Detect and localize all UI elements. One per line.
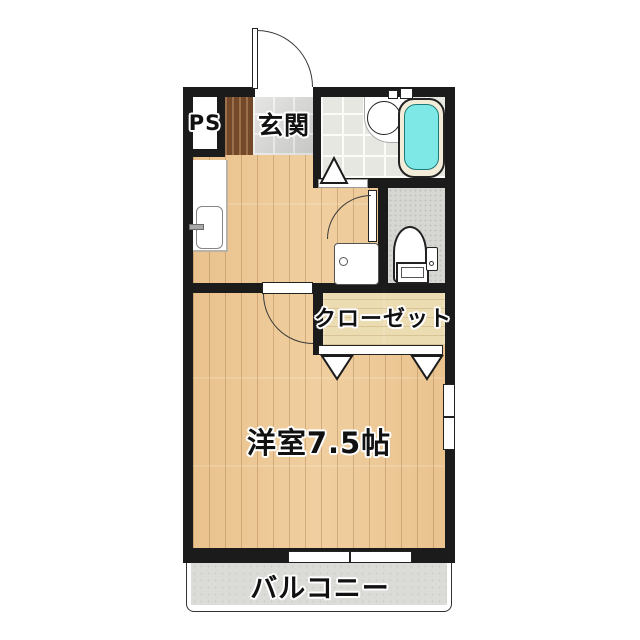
toilet-tank-lid	[401, 267, 424, 278]
toilet-control-panel	[426, 247, 438, 271]
kitchen-faucet	[189, 224, 204, 230]
wall-left	[183, 87, 193, 563]
room-door-leaf	[262, 282, 313, 294]
entrance-door-arc	[257, 30, 313, 87]
entrance-opening	[255, 87, 313, 97]
closet-label: クローゼット	[314, 301, 452, 333]
genkan-step	[225, 97, 253, 155]
floor-plan: PS 玄関 クローゼット 洋室7.5帖 バルコニー	[0, 0, 640, 640]
genkan-label: 玄関	[258, 106, 310, 142]
wall-bathroom-left	[313, 87, 321, 188]
window-east-mullion	[443, 416, 455, 418]
balcony-label: バルコニー	[250, 567, 389, 606]
wall-toilet-left	[378, 188, 388, 283]
washbasin-faucet	[388, 90, 398, 99]
closet-door-track	[318, 345, 443, 355]
bathroom-threshold	[318, 179, 368, 188]
bathtub-water	[404, 104, 439, 170]
washing-machine-drain	[339, 257, 348, 266]
washbasin	[367, 101, 401, 135]
western-room-label: 洋室7.5帖	[247, 420, 391, 462]
ps-label: PS	[189, 111, 222, 135]
window-south-mullion	[349, 551, 351, 563]
toilet-control-button	[429, 261, 434, 266]
